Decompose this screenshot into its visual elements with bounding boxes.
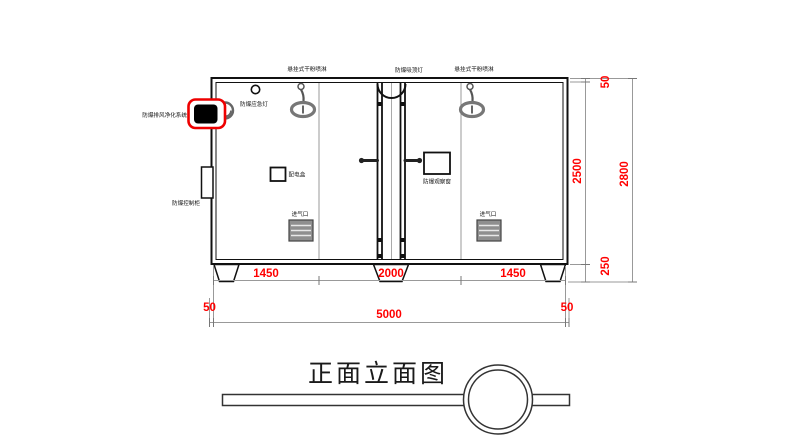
dim-segment-1450-right: 1450 (500, 268, 526, 280)
bolt-icon (378, 254, 382, 258)
label-air-inlet-left: 进气口 (292, 210, 309, 218)
label-exhaust-purifier: 防爆排风净化系统 (142, 111, 187, 119)
dim-side-2800: 2800 (619, 161, 631, 187)
bolt-icon (401, 102, 405, 106)
dim-offset-right-50: 50 (561, 302, 574, 314)
dim-segment-2000: 2000 (378, 268, 404, 280)
bolt-icon (378, 238, 382, 242)
bolt-icon (401, 238, 405, 242)
door-handle-right-knob (417, 158, 422, 163)
label-distribution-box: 配电盒 (289, 171, 306, 179)
label-air-inlet-right: 进气口 (480, 210, 497, 218)
dim-side-top-50: 50 (600, 76, 612, 89)
distribution-box (271, 168, 286, 182)
elevation-drawing-page: 悬挂式干粉喷淋 防爆吸顶灯 悬挂式干粉喷淋 防爆应急灯 防爆排风净化系统 防爆控… (0, 0, 800, 445)
label-ceiling-light: 防爆吸顶灯 (395, 66, 423, 74)
door-handle-left-knob (359, 158, 364, 163)
label-observation-window: 防爆观察窗 (423, 178, 451, 186)
foot-left (214, 265, 239, 282)
dim-side-2500: 2500 (572, 158, 584, 184)
drawing-title: 正面立面图 (308, 360, 448, 388)
control-cabinet-box (202, 167, 214, 198)
bolt-icon (378, 102, 382, 106)
emergency-light-icon (251, 85, 259, 93)
bolt-icon (401, 254, 405, 258)
air-inlet-right-vent (477, 220, 501, 241)
dim-offset-left-50: 50 (203, 302, 216, 314)
label-control-cabinet: 防爆控制柜 (172, 199, 200, 207)
dim-side-250: 250 (600, 256, 612, 275)
label-emergency-light: 防爆应急灯 (240, 100, 268, 108)
air-inlet-left-vent (289, 220, 313, 241)
label-sprinkler-right: 悬挂式干粉喷淋 (454, 65, 494, 73)
title-circle-outer (464, 365, 533, 434)
front-elevation-svg: 悬挂式干粉喷淋 防爆吸顶灯 悬挂式干粉喷淋 防爆应急灯 防爆排风净化系统 防爆控… (0, 0, 800, 445)
purifier-body (194, 105, 218, 124)
dim-total-5000: 5000 (376, 309, 402, 321)
foot-right (541, 265, 566, 282)
observation-window-box (424, 153, 450, 175)
label-sprinkler-left: 悬挂式干粉喷淋 (287, 65, 327, 73)
dim-segment-1450-left: 1450 (253, 268, 279, 280)
